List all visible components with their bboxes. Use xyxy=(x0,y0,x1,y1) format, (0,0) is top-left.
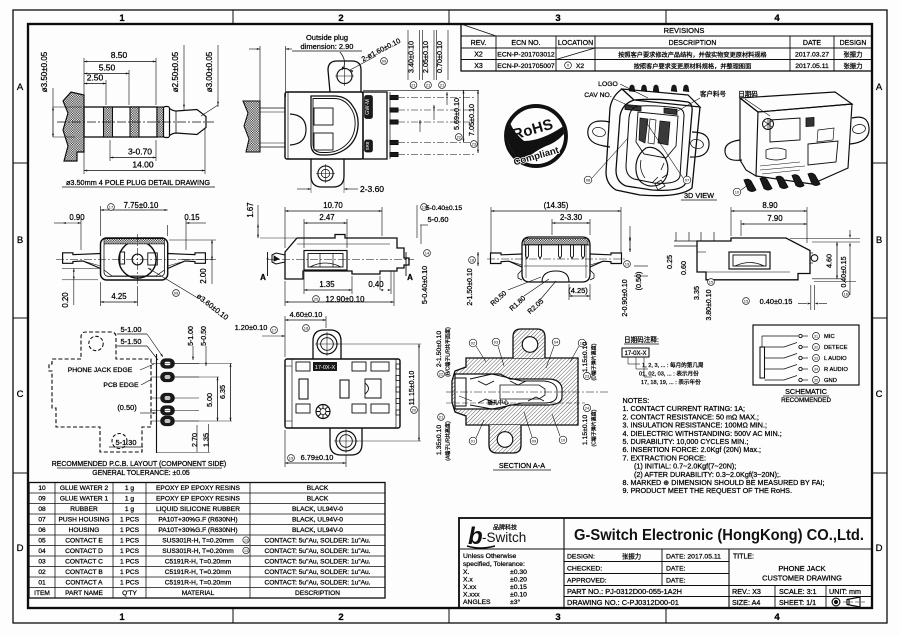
svg-text:15: 15 xyxy=(709,279,714,284)
svg-text:5-0.40±0.10: 5-0.40±0.10 xyxy=(420,266,429,304)
svg-text:2017.03.27: 2017.03.27 xyxy=(795,52,829,59)
svg-text:PUSH HOUSING: PUSH HOUSING xyxy=(59,517,110,524)
svg-text:DETECE: DETECE xyxy=(824,345,848,351)
svg-text:17, 18, 19, ... : 表示年份: 17, 18, 19, ... : 表示年份 xyxy=(641,378,701,386)
svg-text:GENERAL TOLERANCE: ±0.05: GENERAL TOLERANCE: ±0.05 xyxy=(92,470,190,477)
svg-text:CONTACT: 5u"Au, SOLDER: 1u"Au: CONTACT: 5u"Au, SOLDER: 1u"Au. xyxy=(264,548,370,555)
svg-text:3.35: 3.35 xyxy=(692,286,701,300)
svg-text:MIC: MIC xyxy=(824,334,835,340)
svg-text:ITEM: ITEM xyxy=(34,590,50,597)
svg-text:SCHEMATIC: SCHEMATIC xyxy=(785,387,827,396)
svg-text:C5191R-H, T=0.20mm: C5191R-H, T=0.20mm xyxy=(165,580,232,587)
svg-text:2.70: 2.70 xyxy=(190,433,199,447)
svg-text:PHONE JACK EDGE: PHONE JACK EDGE xyxy=(68,367,133,374)
svg-text:(0.50): (0.50) xyxy=(634,272,643,291)
svg-text:REV.: X3: REV.: X3 xyxy=(732,587,761,596)
svg-text:1 g: 1 g xyxy=(125,496,134,503)
svg-text:Q'TY: Q'TY xyxy=(122,590,137,597)
svg-text:MATERIAL: MATERIAL xyxy=(182,590,215,597)
svg-text:2: 2 xyxy=(338,612,343,623)
svg-text:GND: GND xyxy=(824,378,837,384)
svg-text:张振力: 张振力 xyxy=(622,552,641,561)
svg-text:C5191R-H, T=0.20mm: C5191R-H, T=0.20mm xyxy=(165,559,232,566)
svg-text:03: 03 xyxy=(494,339,499,344)
svg-text:CONTACT: 5u"Au, SOLDER: 1u"Au: CONTACT: 5u"Au, SOLDER: 1u"Au. xyxy=(264,569,370,576)
svg-text:2-3.60: 2-3.60 xyxy=(360,184,384,194)
svg-text:RECOMMENDED P.C.B. LAYOUT (: RECOMMENDED P.C.B. LAYOUT (COMPONENT SID… xyxy=(52,461,226,468)
svg-text:4: 4 xyxy=(774,13,780,24)
svg-text:20: 20 xyxy=(412,407,417,412)
svg-text:09: 09 xyxy=(532,438,537,443)
svg-text:Unless Otherwise: Unless Otherwise xyxy=(463,553,516,560)
svg-text:1 PCS: 1 PCS xyxy=(120,559,140,566)
svg-text:17-0X-X: 17-0X-X xyxy=(315,365,336,371)
svg-text:X: X xyxy=(567,63,570,68)
svg-text:D: D xyxy=(17,543,24,554)
svg-text:09: 09 xyxy=(38,496,46,503)
svg-text:5-0.60: 5-0.60 xyxy=(428,215,449,224)
svg-text:X2: X2 xyxy=(474,52,483,59)
svg-text:PART NO.: PJ-0312D00-055-1A2: PART NO.: PJ-0312D00-055-1A2H xyxy=(567,587,682,596)
svg-text:-Switch: -Switch xyxy=(482,530,526,545)
svg-text:5-1.00: 5-1.00 xyxy=(188,326,195,346)
svg-text:09: 09 xyxy=(382,58,387,63)
svg-text:DATE:: DATE: xyxy=(666,578,686,585)
svg-text:7.90: 7.90 xyxy=(767,214,783,223)
svg-text:插孔中心: 插孔中心 xyxy=(487,399,509,407)
svg-text:19: 19 xyxy=(625,261,630,266)
svg-text:CONTACT E: CONTACT E xyxy=(65,538,103,545)
svg-text:13: 13 xyxy=(244,549,248,553)
svg-text:DESIGN:: DESIGN: xyxy=(567,554,595,561)
svg-text:(14.35): (14.35) xyxy=(544,201,569,210)
svg-text:BLACK: BLACK xyxy=(307,485,329,492)
svg-text:D: D xyxy=(876,543,883,554)
svg-text:日期码注释:: 日期码注释: xyxy=(624,335,659,344)
svg-text:1, 2, 3, ... : 每月的第几周: 1, 2, 3, ... : 每月的第几周 xyxy=(642,361,704,369)
svg-text:(4.25): (4.25) xyxy=(568,286,588,295)
svg-text:(0.50): (0.50) xyxy=(117,403,136,412)
svg-text:L AUDIO: L AUDIO xyxy=(824,356,847,362)
svg-text:ø3.50±0.05: ø3.50±0.05 xyxy=(40,51,49,92)
svg-text:1.35: 1.35 xyxy=(202,433,211,447)
svg-text:31: 31 xyxy=(814,334,818,338)
svg-text:4.60: 4.60 xyxy=(825,254,834,268)
svg-text:PA10T+30%G.F (R630NH): PA10T+30%G.F (R630NH) xyxy=(158,517,237,524)
svg-text:X.xxx: X.xxx xyxy=(463,592,480,599)
svg-text:LIQUID SILICONE RUBBER: LIQUID SILICONE RUBBER xyxy=(156,506,240,513)
svg-text:BLACK, UL94V-0: BLACK, UL94V-0 xyxy=(292,527,343,534)
svg-text:1 g: 1 g xyxy=(125,485,134,492)
svg-text:SR8: SR8 xyxy=(365,141,370,150)
svg-text:6.79±0.10: 6.79±0.10 xyxy=(301,453,334,462)
svg-text:BLACK, UL94V-0: BLACK, UL94V-0 xyxy=(292,517,343,524)
svg-text:3-0.70: 3-0.70 xyxy=(128,147,152,157)
svg-text:06: 06 xyxy=(38,527,46,534)
svg-text:HOUSING: HOUSING xyxy=(69,527,100,534)
svg-text:C5191R-H, T=0.20mm: C5191R-H, T=0.20mm xyxy=(165,569,232,576)
svg-text:CONTACT A: CONTACT A xyxy=(65,580,103,587)
svg-text:DRAWING NO.: C-PJ0312D00-01: DRAWING NO.: C-PJ0312D00-01 xyxy=(567,598,679,607)
svg-text:SECTION A-A: SECTION A-A xyxy=(499,461,545,470)
svg-text:1: 1 xyxy=(119,612,125,623)
svg-text:±3°: ±3° xyxy=(510,598,521,606)
svg-text:4: 4 xyxy=(774,612,780,623)
svg-text:SCALE: 3:1: SCALE: 3:1 xyxy=(779,587,817,596)
svg-text:04: 04 xyxy=(38,548,46,555)
svg-text:8.90: 8.90 xyxy=(762,201,778,210)
svg-text:(C端子弹片高度): (C端子弹片高度) xyxy=(591,409,598,446)
svg-text:GLUE WATER 2: GLUE WATER 2 xyxy=(60,485,109,492)
svg-text:客户料号: 客户料号 xyxy=(700,89,727,98)
svg-text:DESIGN: DESIGN xyxy=(840,40,867,47)
svg-text:07: 07 xyxy=(685,177,690,182)
svg-text:GLUE WATER 1: GLUE WATER 1 xyxy=(60,496,109,503)
svg-text:ECN-P-201703012: ECN-P-201703012 xyxy=(497,52,555,59)
svg-text:0.60: 0.60 xyxy=(679,261,688,275)
svg-text:CONTACT: 5u"Au, SOLDER: 1u"Au: CONTACT: 5u"Au, SOLDER: 1u"Au. xyxy=(264,580,370,587)
svg-text:8.50: 8.50 xyxy=(111,50,128,60)
svg-text:EPOXY EP EPOXY RESINS: EPOXY EP EPOXY RESINS xyxy=(156,485,241,492)
svg-text:5-1.50: 5-1.50 xyxy=(121,337,142,346)
svg-text:02: 02 xyxy=(38,569,46,576)
svg-text:1.20±0.10: 1.20±0.10 xyxy=(235,323,268,332)
svg-text:21: 21 xyxy=(440,82,445,87)
svg-text:1 PCS: 1 PCS xyxy=(120,569,140,576)
svg-text:2-3.30: 2-3.30 xyxy=(560,213,583,222)
svg-text:C: C xyxy=(876,389,883,400)
svg-text:G-Switch Electronic (HongKon: G-Switch Electronic (HongKong) CO.,Ltd. xyxy=(574,527,864,544)
svg-text:C: C xyxy=(17,389,24,400)
svg-text:ø2.50±0.05: ø2.50±0.05 xyxy=(171,51,180,92)
svg-text:5-0.40±0.15: 5-0.40±0.15 xyxy=(426,205,462,212)
svg-text:X2: X2 xyxy=(576,63,585,70)
svg-text:2: 2 xyxy=(338,13,343,24)
svg-text:2.47: 2.47 xyxy=(319,213,334,222)
svg-text:3: 3 xyxy=(555,13,560,24)
svg-text:23: 23 xyxy=(585,373,590,378)
svg-text:±0.30: ±0.30 xyxy=(510,569,527,576)
svg-text:07: 07 xyxy=(38,517,46,524)
svg-text:08: 08 xyxy=(38,506,46,513)
svg-text:X.: X. xyxy=(463,569,470,576)
svg-text:1 PCS: 1 PCS xyxy=(120,580,140,587)
svg-text:7.05±0.10: 7.05±0.10 xyxy=(467,104,476,136)
svg-text:±0.10: ±0.10 xyxy=(510,592,527,599)
svg-text:DATE:: DATE: xyxy=(666,566,686,573)
svg-text:21: 21 xyxy=(426,82,431,87)
svg-text:3.80±0.10: 3.80±0.10 xyxy=(706,289,713,320)
svg-text:0.25: 0.25 xyxy=(665,255,674,269)
svg-text:SHEET: 1/1: SHEET: 1/1 xyxy=(779,598,816,607)
svg-text:18: 18 xyxy=(470,257,475,262)
svg-text:20: 20 xyxy=(314,296,319,301)
svg-text:按照客户要求修改产品结构，并做实物变更原材料规格: 按照客户要求修改产品结构，并做实物变更原材料规格 xyxy=(618,51,767,59)
svg-text:1.15±0.10: 1.15±0.10 xyxy=(582,415,589,445)
svg-text:5.50: 5.50 xyxy=(99,63,116,73)
svg-text:REV.: REV. xyxy=(471,40,487,47)
svg-text:BLACK, UL94V-0: BLACK, UL94V-0 xyxy=(292,506,343,513)
svg-text:RECOMMENDED: RECOMMENDED xyxy=(781,397,831,404)
svg-text:13: 13 xyxy=(244,538,248,542)
svg-text:3: 3 xyxy=(555,612,560,623)
svg-text:specified, Tolerance:: specified, Tolerance: xyxy=(463,561,525,568)
svg-text:10: 10 xyxy=(561,437,566,442)
svg-text:21: 21 xyxy=(411,82,416,87)
svg-text:10: 10 xyxy=(38,485,46,492)
svg-text:0.70±0.10: 0.70±0.10 xyxy=(435,41,444,73)
svg-text:16: 16 xyxy=(844,291,849,296)
svg-text:0.40: 0.40 xyxy=(368,280,384,289)
svg-text:9. PRODUCT MEET THE REQUES: 9. PRODUCT MEET THE REQUEST OF THE RoHS. xyxy=(623,486,792,495)
svg-text:5.00: 5.00 xyxy=(205,393,214,407)
svg-text:APPROVED:: APPROVED: xyxy=(567,578,607,585)
svg-text:32: 32 xyxy=(814,345,818,349)
svg-text:08: 08 xyxy=(586,177,591,182)
svg-text:2.05±0.10: 2.05±0.10 xyxy=(421,41,430,73)
svg-text:02: 02 xyxy=(471,340,476,345)
svg-text:22: 22 xyxy=(457,134,462,139)
svg-text:1 PCS: 1 PCS xyxy=(120,548,140,555)
svg-text:05: 05 xyxy=(38,538,46,545)
svg-text:PART NAME: PART NAME xyxy=(65,590,103,597)
svg-text:张振力: 张振力 xyxy=(843,50,862,59)
svg-text:CONTACT B: CONTACT B xyxy=(65,569,103,576)
svg-text:CONTACT: 5u"Au, SOLDER: 1u"Au: CONTACT: 5u"Au, SOLDER: 1u"Au. xyxy=(264,559,370,566)
svg-text:±0.20: ±0.20 xyxy=(510,577,527,584)
svg-text:b: b xyxy=(468,523,483,550)
svg-text:3.40±0.10: 3.40±0.10 xyxy=(407,41,416,73)
svg-text:0.40±0.15: 0.40±0.15 xyxy=(760,297,793,306)
svg-text:SUS301R-H, T=0.20mm: SUS301R-H, T=0.20mm xyxy=(162,548,234,555)
svg-text:B: B xyxy=(17,235,23,246)
svg-text:(D端子弹片高度): (D端子弹片高度) xyxy=(591,343,598,380)
svg-text:7.75±0.10: 7.75±0.10 xyxy=(124,201,159,210)
svg-text:A: A xyxy=(17,82,24,93)
svg-text:19: 19 xyxy=(289,455,294,460)
svg-text:0.90: 0.90 xyxy=(69,213,85,222)
svg-text:01: 01 xyxy=(38,580,46,587)
svg-text:dimension: 2.90: dimension: 2.90 xyxy=(301,42,354,51)
svg-text:22: 22 xyxy=(439,371,444,376)
svg-text:14: 14 xyxy=(425,250,430,255)
svg-text:Outside plug: Outside plug xyxy=(306,33,348,42)
svg-text:2.50: 2.50 xyxy=(87,73,104,83)
svg-text:0.40±0.15: 0.40±0.15 xyxy=(841,256,848,287)
svg-text:4.60±0.10: 4.60±0.10 xyxy=(290,310,323,319)
svg-text:01, 02, 03, ... : 表示月份: 01, 02, 03, ... : 表示月份 xyxy=(639,370,699,378)
svg-text:RUBBER: RUBBER xyxy=(70,506,98,513)
svg-text:10: 10 xyxy=(735,189,740,194)
svg-text:ECN NO.: ECN NO. xyxy=(511,40,540,47)
svg-text:5-1.00: 5-1.00 xyxy=(121,325,142,334)
svg-text:PA10T+30%G.F (R630NH): PA10T+30%G.F (R630NH) xyxy=(158,527,237,534)
svg-text:21: 21 xyxy=(439,414,444,419)
svg-text:0.20: 0.20 xyxy=(61,292,70,308)
svg-text:X.x: X.x xyxy=(463,577,473,584)
svg-text:2.00: 2.00 xyxy=(199,268,208,284)
svg-text:ø3.00±0.05: ø3.00±0.05 xyxy=(205,51,214,92)
svg-text:PCB EDGE: PCB EDGE xyxy=(103,382,139,389)
svg-text:X3: X3 xyxy=(474,63,483,70)
svg-text:DESCRIPTION: DESCRIPTION xyxy=(295,590,340,597)
svg-text:DATE: DATE xyxy=(803,40,821,47)
svg-text:17: 17 xyxy=(272,327,277,332)
svg-text:15: 15 xyxy=(744,298,749,303)
svg-text:(A端子L/R共高度): (A端子L/R共高度) xyxy=(445,421,452,461)
svg-text:(B/C端子L/R共平面度): (B/C端子L/R共平面度) xyxy=(445,327,452,377)
svg-text:EPOXY EP EPOXY RESINS: EPOXY EP EPOXY RESINS xyxy=(156,496,241,503)
svg-text:CAV NO.: CAV NO. xyxy=(584,92,612,99)
svg-text:14.00: 14.00 xyxy=(132,160,154,170)
svg-text:1.67: 1.67 xyxy=(246,202,255,217)
svg-text:12.90±0.10: 12.90±0.10 xyxy=(326,295,366,304)
svg-text:LOCATION: LOCATION xyxy=(558,40,593,47)
svg-text:24: 24 xyxy=(585,405,590,410)
svg-text:CHECKED:: CHECKED: xyxy=(567,566,602,573)
svg-text:5-1.30: 5-1.30 xyxy=(116,438,137,447)
svg-text:35: 35 xyxy=(814,378,818,382)
svg-text:A: A xyxy=(260,273,266,282)
svg-text:CUSTOMER DRAWING: CUSTOMER DRAWING xyxy=(762,574,842,583)
svg-text:33: 33 xyxy=(814,356,818,360)
svg-text:A: A xyxy=(876,82,883,93)
svg-text:TITLE:: TITLE: xyxy=(733,554,754,561)
svg-text:17-0X-X: 17-0X-X xyxy=(624,351,646,357)
svg-text:按照客户要求变更原材料规格，并整理图面: 按照客户要求变更原材料规格，并整理图面 xyxy=(634,62,752,70)
svg-text:1: 1 xyxy=(119,13,125,24)
svg-text:34: 34 xyxy=(814,367,818,371)
svg-text:2-1.50±0.10: 2-1.50±0.10 xyxy=(467,268,474,305)
svg-text:CONTACT C: CONTACT C xyxy=(65,559,103,566)
svg-text:1.35±0.10: 1.35±0.10 xyxy=(436,425,443,455)
svg-text:18: 18 xyxy=(304,325,309,330)
svg-text:LOGO: LOGO xyxy=(598,81,618,88)
svg-text:0.15: 0.15 xyxy=(184,213,200,222)
svg-text:1 PCS: 1 PCS xyxy=(120,538,140,545)
svg-text:17: 17 xyxy=(109,204,114,209)
svg-text:11.15±0.10: 11.15±0.10 xyxy=(409,371,416,406)
svg-text:03: 03 xyxy=(38,559,46,566)
svg-text:4.25: 4.25 xyxy=(111,292,127,301)
svg-text:A: A xyxy=(407,273,413,282)
svg-text:B: B xyxy=(876,235,882,246)
svg-text:ANGLES: ANGLES xyxy=(463,599,491,606)
svg-text:PHONE JACK: PHONE JACK xyxy=(778,564,825,573)
svg-text:X.xx: X.xx xyxy=(463,584,477,591)
svg-text:1 g: 1 g xyxy=(125,506,134,513)
svg-text:10.70: 10.70 xyxy=(323,201,343,210)
svg-text:6.35: 6.35 xyxy=(218,385,227,399)
svg-text:04: 04 xyxy=(554,339,559,344)
svg-text:张振力: 张振力 xyxy=(843,61,862,70)
svg-text:2017.05.11: 2017.05.11 xyxy=(795,63,829,70)
svg-text:01: 01 xyxy=(471,438,476,443)
svg-text:CONTACT D: CONTACT D xyxy=(65,548,103,555)
svg-text:GW-M: GW-M xyxy=(365,99,371,115)
svg-text:1 PCS: 1 PCS xyxy=(120,527,140,534)
svg-text:SIZE: A4: SIZE: A4 xyxy=(732,598,760,607)
svg-text:DESCRIPTION: DESCRIPTION xyxy=(669,40,717,47)
svg-text:SUS301R-H, T=0.20mm: SUS301R-H, T=0.20mm xyxy=(162,538,234,545)
svg-text:5-0.50: 5-0.50 xyxy=(201,326,208,346)
svg-text:REVISIONS: REVISIONS xyxy=(664,26,705,35)
svg-text:1 PCS: 1 PCS xyxy=(120,517,140,524)
svg-text:ECN-P-201705007: ECN-P-201705007 xyxy=(497,63,555,70)
svg-text:ø3.50mm 4 POLE PLUG DETAIL: ø3.50mm 4 POLE PLUG DETAIL DRAWING xyxy=(66,178,210,187)
svg-text:23: 23 xyxy=(472,141,477,146)
svg-text:1.35: 1.35 xyxy=(319,280,335,289)
svg-text:1.15±0.10: 1.15±0.10 xyxy=(582,342,589,372)
svg-text:CONTACT: 5u"Au, SOLDER: 1u"Au: CONTACT: 5u"Au, SOLDER: 1u"Au. xyxy=(264,538,370,545)
svg-text:UNIT: mm: UNIT: mm xyxy=(829,587,861,596)
svg-text:2-1.50±0.10: 2-1.50±0.10 xyxy=(436,331,443,367)
svg-text:±0.15: ±0.15 xyxy=(510,584,527,591)
svg-text:DATE: 2017.05.11: DATE: 2017.05.11 xyxy=(666,554,721,561)
svg-text:3D VIEW: 3D VIEW xyxy=(684,191,714,200)
svg-text:BLACK: BLACK xyxy=(307,496,329,503)
svg-text:R AUDIO: R AUDIO xyxy=(824,367,848,373)
svg-text:5.69±0.10: 5.69±0.10 xyxy=(452,98,461,130)
svg-text:2-0.90±0.10: 2-0.90±0.10 xyxy=(622,279,629,316)
svg-text:09: 09 xyxy=(174,290,179,295)
